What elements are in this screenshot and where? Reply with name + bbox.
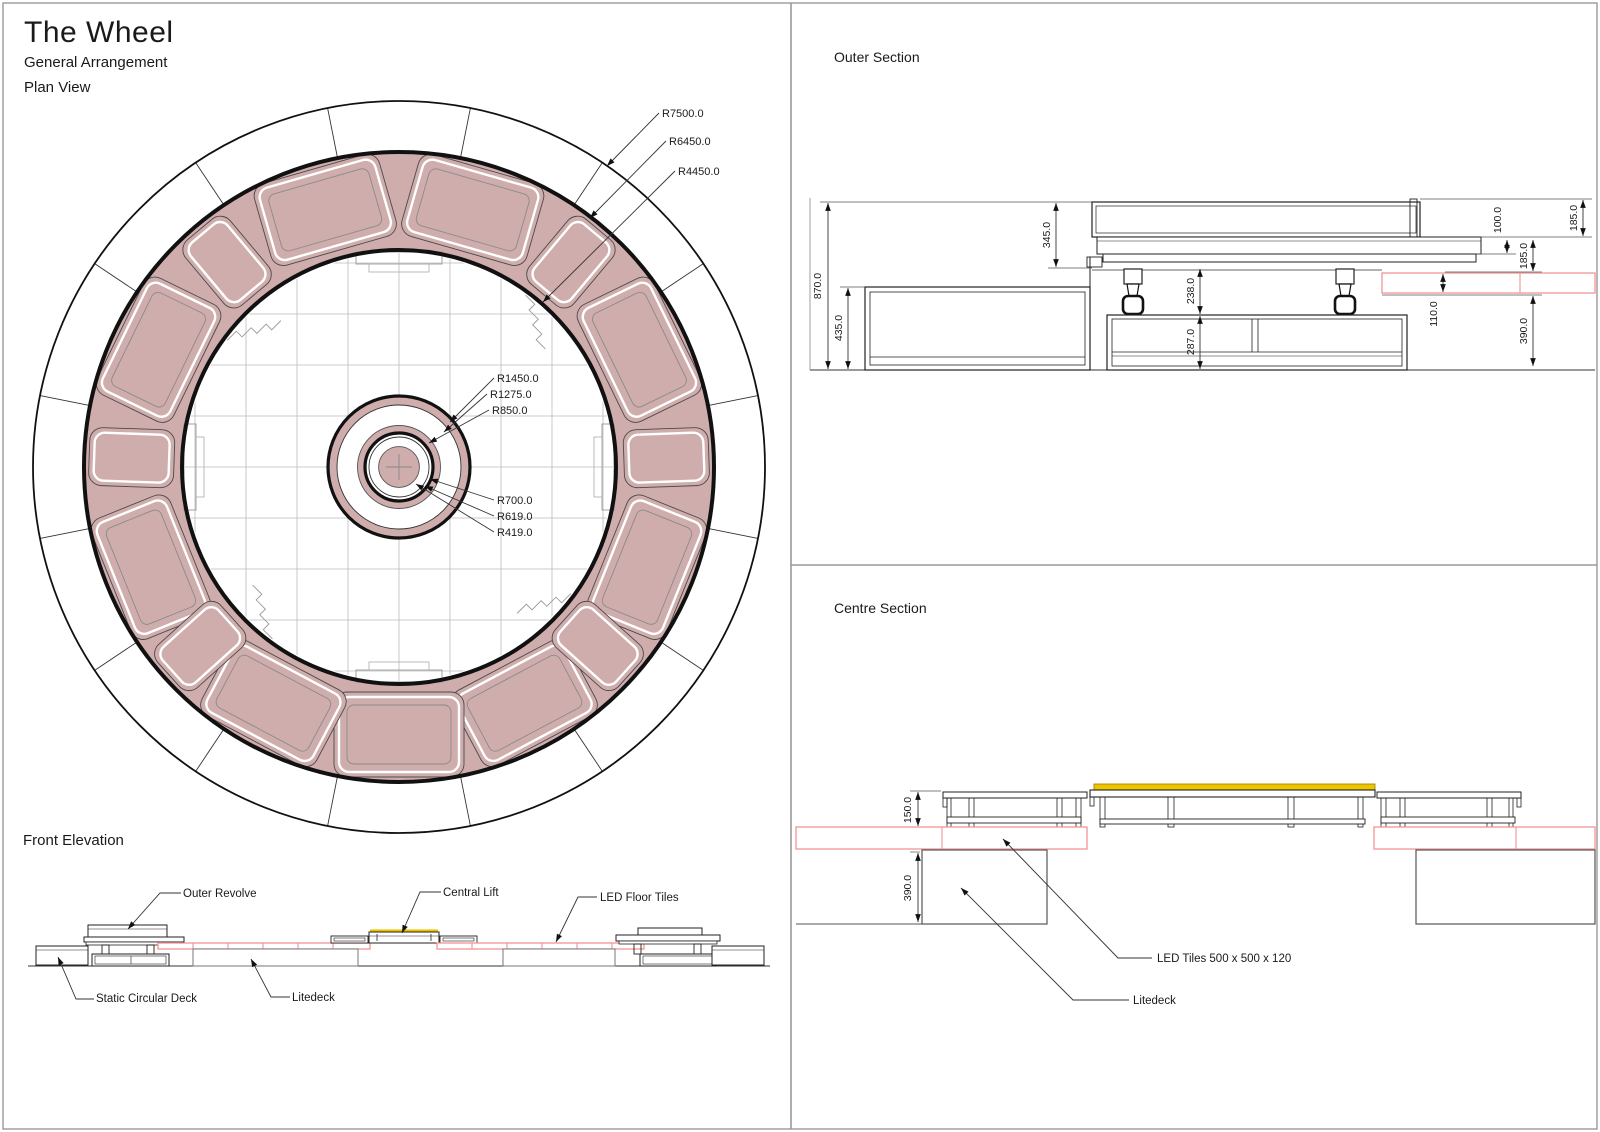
label-led-floor-tiles: LED Floor Tiles (600, 892, 679, 904)
litedeck-right (503, 949, 615, 966)
outer-deck-joint (708, 396, 758, 406)
static-deck-right (712, 946, 764, 965)
callout-r7500: R7500.0 (662, 108, 704, 120)
led-strip-left (158, 943, 370, 949)
label-litedeck-centre: Litedeck (1133, 995, 1176, 1007)
label-led-tiles: LED Tiles 500 x 500 x 120 (1157, 953, 1291, 965)
view-title: Plan View (24, 79, 90, 96)
callout-r1450: R1450.0 (497, 373, 539, 385)
centre-litedeck-box-left (922, 850, 1047, 924)
outer-deck-joint (460, 776, 470, 826)
dim-287: 287.0 (1185, 329, 1197, 355)
callout-r700: R700.0 (497, 495, 532, 507)
dim-238: 238.0 (1185, 278, 1197, 304)
outer-support-frame (1107, 315, 1407, 370)
front-elevation-title: Front Elevation (23, 832, 124, 849)
centre-lift-platform (1090, 784, 1375, 827)
lift-led-tiles-top (1094, 784, 1375, 790)
dim-185-upper: 185.0 (1568, 205, 1580, 231)
outer-deck-joint (661, 264, 703, 292)
callout-r850: R850.0 (492, 405, 527, 417)
drawing-canvas: R7500.0 R6450.0 R4450.0 R1450.0 R1275.0 … (0, 0, 1600, 1132)
dim-390-centre: 390.0 (902, 875, 914, 901)
callout-r4450: R4450.0 (678, 166, 720, 178)
dim-390-outer: 390.0 (1518, 318, 1530, 344)
dim-110: 110.0 (1428, 301, 1440, 327)
plan-view: R7500.0 R6450.0 R4450.0 R1450.0 R1275.0 … (33, 101, 765, 833)
dim-870: 870.0 (812, 273, 824, 299)
label-litedeck-elevation: Litedeck (292, 992, 335, 1004)
outer-deck-joint (708, 528, 758, 538)
castor-left (1123, 269, 1143, 314)
pod-small (623, 427, 710, 488)
dim-435: 435.0 (833, 315, 845, 341)
centre-led-strip-right (1374, 827, 1595, 849)
outer-revolve-deck (1092, 199, 1481, 270)
outer-deck-joint (574, 729, 602, 771)
outer-deck-joint (95, 264, 137, 292)
outer-deck-joint (40, 396, 90, 406)
centre-section-title: Centre Section (834, 600, 927, 616)
callout-r419: R419.0 (497, 527, 532, 539)
dim-185-lower: 185.0 (1518, 243, 1530, 269)
outer-deck-joint (328, 108, 338, 158)
label-outer-revolve: Outer Revolve (183, 888, 257, 900)
page-title: The Wheel (24, 16, 174, 50)
centre-led-strip-left (796, 827, 1087, 849)
front-elevation: Outer Revolve Central Lift LED Floor Til… (28, 887, 770, 1005)
centre-section: 150.0 390.0 LED Tiles 500 x 500 x 120 Li… (796, 784, 1595, 1007)
led-strip-right (437, 943, 644, 949)
central-lift-elevation (331, 931, 477, 943)
centre-litedeck-box-right (1416, 850, 1595, 924)
castor-right (1335, 269, 1355, 314)
outer-deck-joint (574, 163, 602, 205)
label-central-lift: Central Lift (443, 887, 499, 899)
outer-deck-joint (196, 163, 224, 205)
outer-deck-joint (460, 108, 470, 158)
outer-deck-joint (661, 642, 703, 670)
label-static-circular-deck: Static Circular Deck (96, 993, 197, 1005)
pod-small (88, 427, 175, 488)
outer-deck-joint (40, 528, 90, 538)
outer-deck-joint (95, 642, 137, 670)
centre-platform-right (1377, 792, 1521, 827)
callout-r619: R619.0 (497, 511, 532, 523)
static-deck-left (36, 946, 88, 965)
centre-platform-left (943, 792, 1087, 827)
centre-lift-plan (328, 396, 470, 538)
outer-section: 870.0 435.0 345.0 238.0 287.0 100.0 185.… (810, 198, 1595, 370)
dim-150: 150.0 (902, 797, 914, 823)
litedeck-left (193, 949, 358, 966)
callout-r1275: R1275.0 (490, 389, 532, 401)
pod-large (334, 692, 464, 777)
callout-r6450: R6450.0 (669, 136, 711, 148)
outer-led-strip (1382, 273, 1595, 293)
dim-100: 100.0 (1492, 207, 1504, 233)
outer-section-title: Outer Section (834, 49, 920, 65)
page-subtitle: General Arrangement (24, 54, 167, 71)
outer-static-deck (865, 257, 1102, 370)
outer-deck-joint (196, 729, 224, 771)
dim-345: 345.0 (1041, 222, 1053, 248)
outer-deck-joint (328, 776, 338, 826)
